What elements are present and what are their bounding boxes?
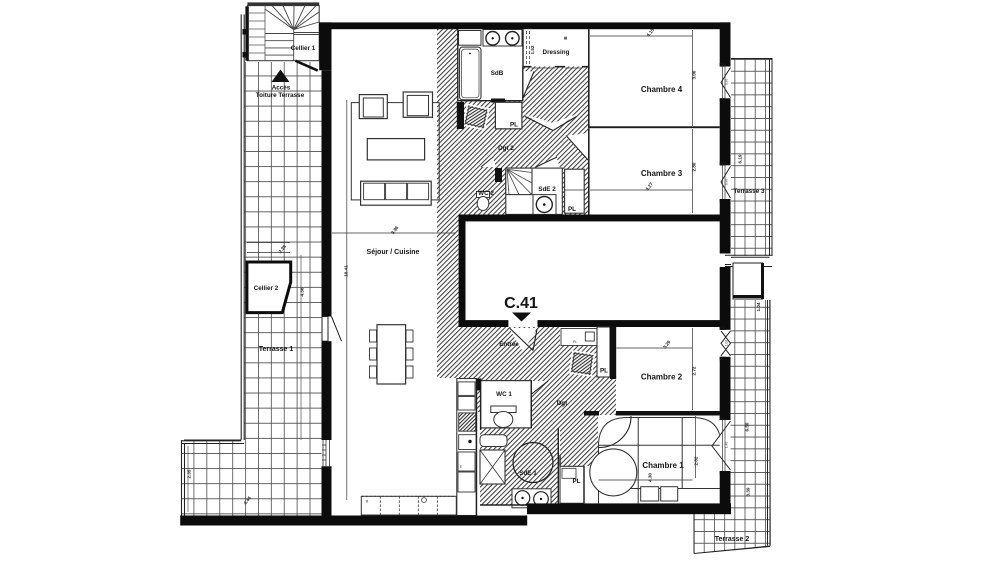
svg-text:3.00: 3.00 — [692, 70, 697, 79]
svg-text:Chambre 4: Chambre 4 — [641, 85, 683, 94]
svg-text:Dressing: Dressing — [543, 49, 570, 56]
svg-text:2.82: 2.82 — [694, 456, 699, 465]
svg-text:Chambre 2: Chambre 2 — [641, 373, 683, 382]
svg-text:2.72: 2.72 — [692, 366, 697, 375]
svg-text:PL: PL — [572, 478, 580, 485]
svg-text:Chambre 1: Chambre 1 — [642, 461, 684, 470]
svg-text:PL: PL — [573, 340, 577, 344]
svg-text:0.90: 0.90 — [725, 179, 729, 185]
svg-text:6.50: 6.50 — [745, 422, 750, 431]
svg-text:Dgt 2: Dgt 2 — [498, 145, 514, 152]
svg-text:2.80: 2.80 — [692, 162, 697, 171]
svg-text:Séjour / Cuisine: Séjour / Cuisine — [367, 249, 420, 256]
svg-text:Entrée: Entrée — [499, 341, 519, 348]
svg-text:Cellier 2: Cellier 2 — [254, 285, 279, 292]
svg-text:Terrasse 2: Terrasse 2 — [715, 536, 750, 543]
svg-text:SdE 2: SdE 2 — [538, 186, 556, 193]
svg-text:4.30: 4.30 — [648, 473, 653, 482]
svg-text:Toiture Terrasse: Toiture Terrasse — [256, 92, 305, 99]
svg-text:2.35: 2.35 — [187, 469, 192, 478]
svg-text:PL: PL — [568, 206, 576, 213]
svg-text:PL: PL — [510, 122, 518, 129]
svg-text:6.19: 6.19 — [738, 154, 743, 163]
svg-text:Terrasse 1: Terrasse 1 — [259, 346, 294, 353]
svg-text:Terrasse 3: Terrasse 3 — [733, 188, 765, 195]
svg-text:C.41: C.41 — [504, 295, 538, 312]
svg-text:1.00: 1.00 — [725, 340, 729, 346]
svg-text:1.40: 1.40 — [725, 442, 729, 448]
svg-text:1.52: 1.52 — [530, 45, 535, 54]
svg-text:1.04: 1.04 — [756, 302, 761, 311]
svg-text:10.41: 10.41 — [344, 265, 349, 277]
svg-text:SdE 1: SdE 1 — [519, 470, 537, 477]
svg-text:WC 1: WC 1 — [496, 391, 512, 398]
svg-text:M: M — [366, 500, 369, 504]
svg-text:SdB: SdB — [491, 70, 504, 77]
svg-text:0.90: 0.90 — [725, 79, 729, 85]
svg-text:4.36: 4.36 — [300, 287, 305, 296]
svg-text:Cellier 1: Cellier 1 — [291, 45, 316, 52]
svg-text:3.39: 3.39 — [746, 487, 751, 496]
svg-text:Accès: Accès — [272, 85, 291, 92]
svg-text:Chambre 3: Chambre 3 — [641, 169, 683, 178]
svg-text:Dgt: Dgt — [557, 400, 568, 407]
svg-text:PL: PL — [600, 368, 608, 375]
svg-text:E: E — [460, 465, 462, 469]
svg-text:WC 2: WC 2 — [478, 190, 494, 197]
